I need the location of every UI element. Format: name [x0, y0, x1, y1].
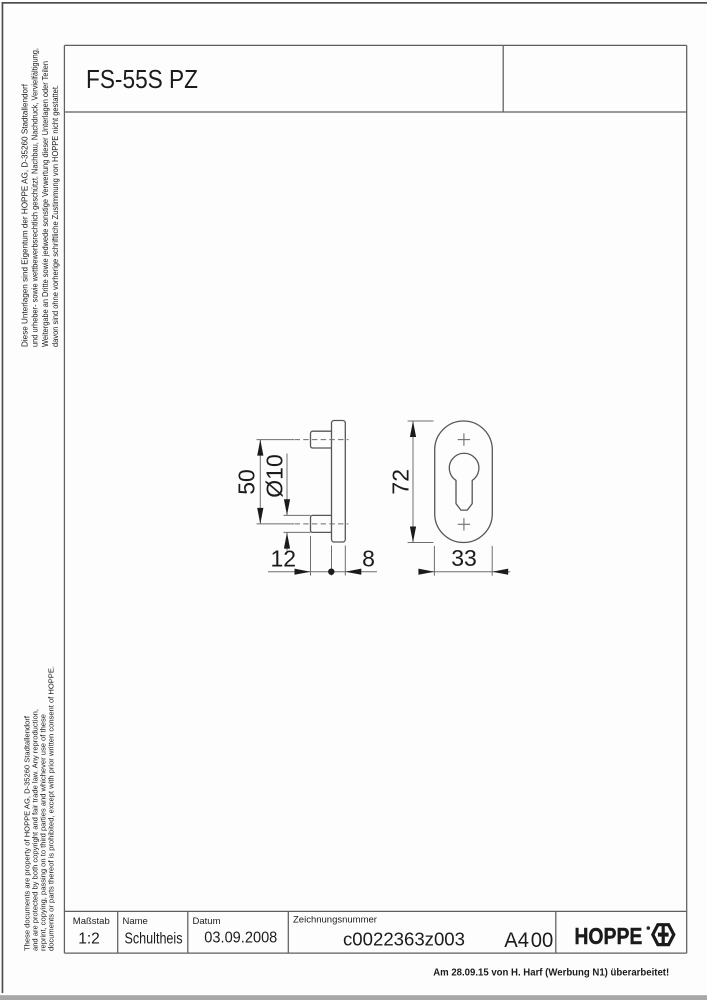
- svg-text:50: 50: [234, 469, 260, 495]
- svg-text:03.09.2008: 03.09.2008: [204, 930, 277, 947]
- svg-text:12: 12: [271, 546, 297, 572]
- svg-text:FS-55S PZ: FS-55S PZ: [86, 66, 198, 94]
- svg-text:Weitergabe an Dritte sowie jed: Weitergabe an Dritte sowie jedwede sonst…: [41, 61, 50, 347]
- svg-text:These documents are property o: These documents are property of HOPPE AG…: [25, 716, 32, 951]
- svg-text:A4 00: A4 00: [504, 929, 553, 952]
- svg-text:Ø10: Ø10: [262, 454, 288, 497]
- svg-text:Name: Name: [123, 916, 148, 927]
- svg-text:Maßstab: Maßstab: [73, 916, 110, 927]
- svg-text:davon sind ohne vorherige schr: davon sind ohne vorherige schriftliche Z…: [51, 85, 60, 347]
- svg-text:Am 28.09.15 von H. Harf (Werbu: Am 28.09.15 von H. Harf (Werbung N1) übe…: [433, 967, 669, 979]
- svg-text:Zeichnungsnummer: Zeichnungsnummer: [293, 915, 377, 926]
- svg-text:c0022363z003: c0022363z003: [343, 929, 465, 950]
- svg-text:and are protected by both copy: and are protected by both copyright and …: [33, 709, 40, 951]
- svg-text:Schultheis: Schultheis: [125, 931, 183, 948]
- svg-text:Datum: Datum: [193, 916, 221, 927]
- svg-text:33: 33: [451, 545, 477, 571]
- svg-text:1:2: 1:2: [78, 931, 100, 948]
- svg-text:Diese Unterlagen sind Eigentum: Diese Unterlagen sind Eigentum der HOPPE…: [20, 83, 29, 347]
- svg-text:72: 72: [388, 469, 414, 495]
- svg-text:und urheber- sowie wettbewerbs: und urheber- sowie wettbewerbsrechtlich …: [31, 48, 40, 347]
- svg-text:reprint, copying, passing on t: reprint, copying, passing on to third pa…: [41, 714, 48, 951]
- svg-text:HOPPE: HOPPE: [574, 923, 642, 949]
- svg-text:documents or parts thereof is: documents or parts thereof is prohibited…: [48, 666, 55, 951]
- svg-text:8: 8: [362, 546, 375, 572]
